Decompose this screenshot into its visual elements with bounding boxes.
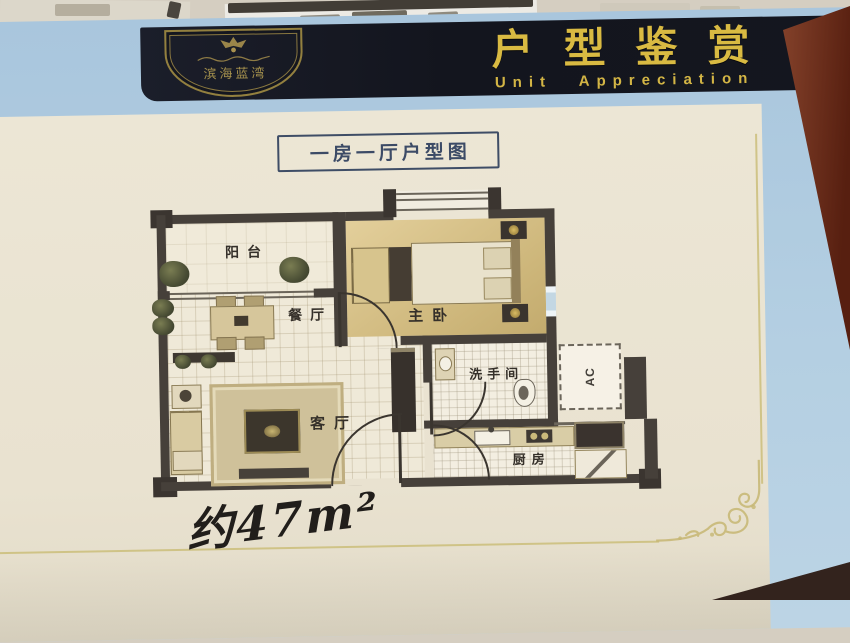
room-label-bedroom: 主卧 bbox=[408, 304, 456, 326]
wall-segment bbox=[423, 336, 433, 383]
dining-chair bbox=[245, 336, 265, 349]
room-label-living: 客厅 bbox=[310, 412, 358, 434]
floor-plan: AC bbox=[148, 180, 674, 509]
brochure-header: 滨海蓝湾 户型鉴赏 Unit Appreciation bbox=[140, 14, 850, 101]
room-label-kitchen: 厨房 bbox=[513, 448, 551, 468]
plan-title: 一房一厅户型图 bbox=[306, 137, 471, 167]
bay-window-pier bbox=[383, 189, 396, 217]
wall-segment bbox=[546, 316, 558, 426]
plant-icon bbox=[279, 257, 309, 284]
plant-icon bbox=[152, 299, 174, 317]
plant-icon bbox=[201, 354, 217, 368]
pillow bbox=[484, 277, 512, 299]
ac-platform: AC bbox=[559, 343, 622, 410]
bedroom-window bbox=[546, 286, 557, 316]
photo-of-floorplan-brochure: { "header": { "logo": { "emblem_icon": "… bbox=[0, 0, 850, 600]
wall-segment bbox=[644, 419, 658, 479]
wall-segment bbox=[544, 208, 555, 286]
bed-runner bbox=[389, 247, 412, 301]
sink-faucet bbox=[488, 426, 494, 432]
room-label-bathroom: 洗手间 bbox=[469, 363, 523, 383]
dining-chair bbox=[217, 337, 237, 350]
project-logo-badge: 滨海蓝湾 bbox=[164, 28, 303, 98]
paper-fold-shadow bbox=[0, 544, 771, 643]
bay-window-glass bbox=[396, 208, 488, 212]
brochure-page: 滨海蓝湾 户型鉴赏 Unit Appreciation 一房一厅户型图 bbox=[0, 7, 850, 643]
room-label-balcony: 阳台 bbox=[225, 241, 269, 262]
wall-segment bbox=[624, 357, 647, 419]
page-title: 户型鉴赏 bbox=[350, 20, 850, 75]
paper-mark bbox=[55, 4, 110, 16]
headboard bbox=[511, 239, 521, 303]
room-label-dining: 餐厅 bbox=[288, 304, 332, 325]
plan-title-box: 一房一厅户型图 bbox=[277, 131, 500, 172]
tv-bench bbox=[239, 468, 309, 479]
header-titles: 户型鉴赏 Unit Appreciation bbox=[350, 20, 850, 93]
floorplan-card: 一房一厅户型图 bbox=[0, 104, 771, 643]
fridge bbox=[574, 421, 624, 449]
toilet-seat bbox=[518, 386, 528, 400]
kitchen-cabinet bbox=[575, 449, 627, 479]
plant-icon bbox=[175, 355, 191, 369]
pillow bbox=[483, 247, 511, 269]
nightstand-lamp bbox=[510, 308, 520, 318]
side-table bbox=[173, 451, 203, 472]
project-name: 滨海蓝湾 bbox=[167, 62, 301, 83]
ac-label: AC bbox=[583, 367, 597, 387]
wash-basin bbox=[439, 356, 452, 371]
stove-burner bbox=[530, 433, 537, 440]
crest-icon bbox=[211, 36, 255, 55]
table-centerpiece bbox=[234, 316, 248, 326]
gold-frame-line-vertical bbox=[755, 134, 763, 484]
kitchen-sink bbox=[474, 430, 510, 446]
